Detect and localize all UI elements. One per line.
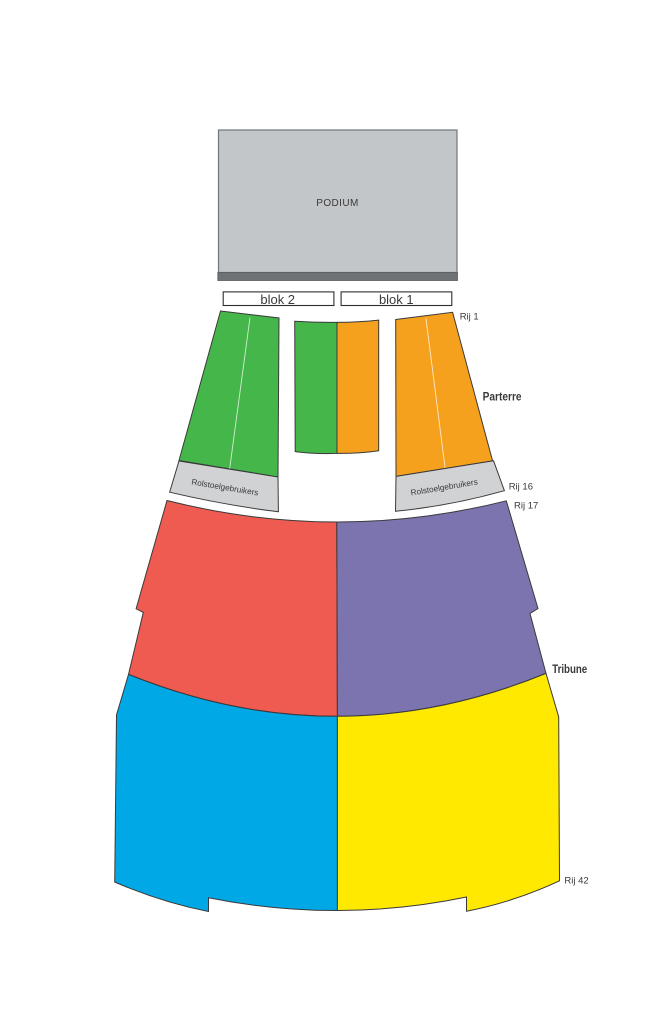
svg-text:blok 1: blok 1 bbox=[379, 292, 414, 307]
svg-text:Rij 16: Rij 16 bbox=[509, 482, 533, 493]
svg-text:Rij 1: Rij 1 bbox=[460, 312, 479, 323]
svg-text:Rij 42: Rij 42 bbox=[564, 875, 588, 886]
svg-text:PODIUM: PODIUM bbox=[316, 198, 358, 209]
svg-text:blok 2: blok 2 bbox=[260, 292, 295, 307]
svg-text:Parterre: Parterre bbox=[483, 392, 522, 404]
svg-text:Rij 17: Rij 17 bbox=[514, 501, 538, 512]
svg-text:Tribune: Tribune bbox=[552, 664, 587, 676]
